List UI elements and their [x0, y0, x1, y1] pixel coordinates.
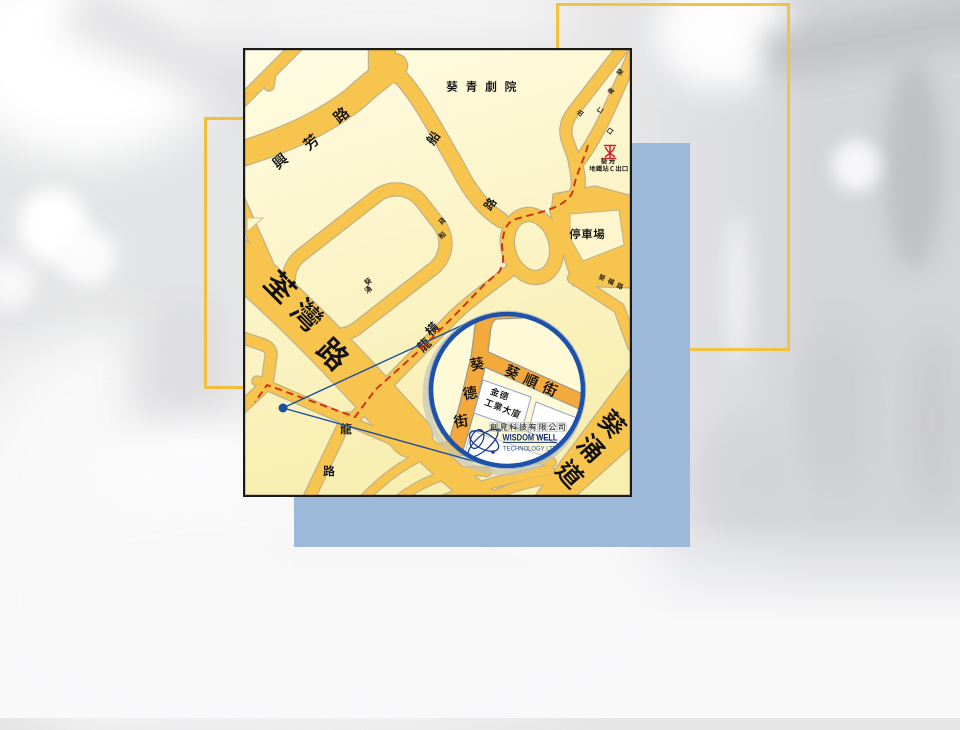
svg-text:WISDOM WELL: WISDOM WELL: [503, 433, 559, 443]
